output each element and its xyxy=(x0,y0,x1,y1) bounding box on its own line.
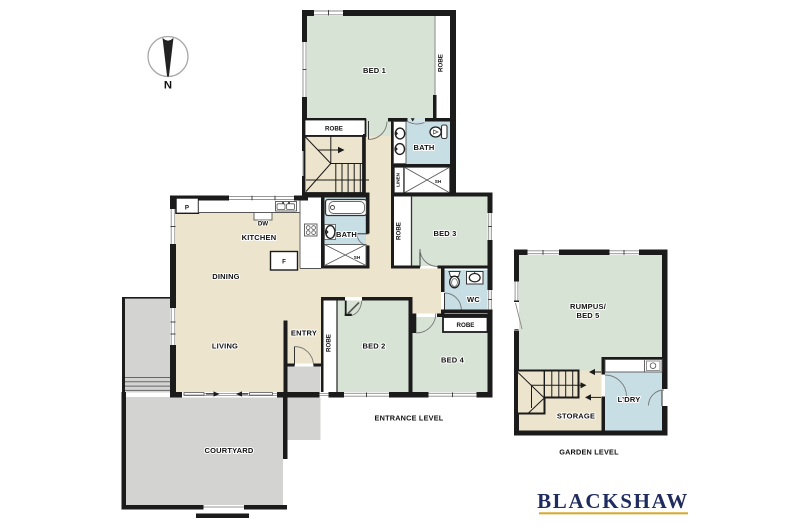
svg-text:LIVING: LIVING xyxy=(212,342,238,351)
svg-text:SH: SH xyxy=(354,255,361,260)
svg-text:BED 2: BED 2 xyxy=(362,342,385,351)
svg-text:COURTYARD: COURTYARD xyxy=(204,446,253,455)
svg-text:L’DRY: L’DRY xyxy=(618,395,641,404)
svg-text:WC: WC xyxy=(467,295,480,304)
svg-text:BATH: BATH xyxy=(336,230,357,239)
svg-text:ROBE: ROBE xyxy=(396,222,403,240)
svg-text:DW: DW xyxy=(258,221,268,228)
svg-text:BED 5: BED 5 xyxy=(576,311,599,320)
svg-text:BED 4: BED 4 xyxy=(441,356,465,365)
svg-text:KITCHEN: KITCHEN xyxy=(242,233,277,242)
svg-text:LINEN: LINEN xyxy=(395,172,400,186)
svg-text:BATH: BATH xyxy=(413,143,434,152)
svg-text:ENTRY: ENTRY xyxy=(291,329,317,338)
svg-text:BED 3: BED 3 xyxy=(433,229,456,238)
svg-text:RUMPUS/: RUMPUS/ xyxy=(570,302,607,311)
svg-text:P: P xyxy=(185,205,189,212)
svg-text:ROBE: ROBE xyxy=(326,334,333,352)
svg-text:F: F xyxy=(282,259,286,266)
svg-text:GARDEN LEVEL: GARDEN LEVEL xyxy=(559,447,619,456)
svg-text:BLACKSHAW: BLACKSHAW xyxy=(537,489,689,513)
svg-text:N: N xyxy=(164,79,172,91)
svg-text:ROBE: ROBE xyxy=(457,322,475,329)
svg-text:STORAGE: STORAGE xyxy=(557,412,595,421)
svg-text:BED 1: BED 1 xyxy=(363,66,386,75)
svg-text:DINING: DINING xyxy=(212,272,239,281)
svg-text:SH: SH xyxy=(435,179,442,184)
svg-text:ROBE: ROBE xyxy=(438,54,445,72)
svg-text:ENTRANCE LEVEL: ENTRANCE LEVEL xyxy=(375,414,444,423)
svg-text:ROBE: ROBE xyxy=(325,126,343,133)
